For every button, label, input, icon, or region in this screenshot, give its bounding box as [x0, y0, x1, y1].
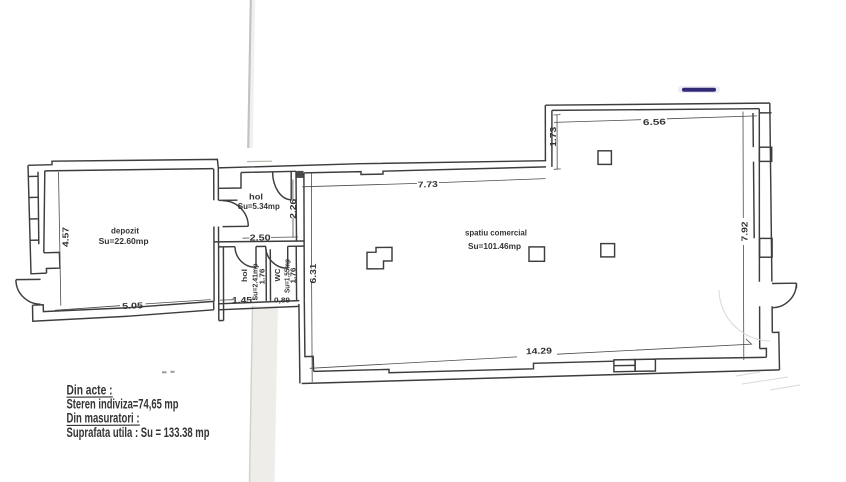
svg-text:Su=101.46mp: Su=101.46mp — [468, 241, 521, 251]
svg-text:2.50: 2.50 — [250, 233, 271, 243]
svg-text:7.92: 7.92 — [739, 221, 749, 241]
svg-text:6.31: 6.31 — [308, 263, 318, 283]
svg-text:1.76: 1.76 — [288, 268, 297, 284]
svg-text:Su=5.34mp: Su=5.34mp — [238, 201, 280, 211]
svg-text:Din acte :: Din acte : — [67, 383, 113, 398]
svg-text:hol: hol — [240, 269, 249, 282]
svg-text:14.29: 14.29 — [526, 345, 553, 356]
svg-text:5.05: 5.05 — [122, 300, 144, 311]
svg-text:Steren indiviza=74,65 mp: Steren indiviza=74,65 mp — [67, 397, 179, 412]
svg-text:1.76: 1.76 — [258, 269, 267, 285]
svg-text:Din masuratori :: Din masuratori : — [67, 411, 140, 426]
svg-text:WC: WC — [273, 268, 282, 282]
svg-text:Su=22.60mp: Su=22.60mp — [99, 236, 149, 246]
svg-text:0,89: 0,89 — [274, 295, 290, 304]
svg-text:spatiu comercial: spatiu comercial — [465, 228, 527, 238]
svg-text:4.57: 4.57 — [60, 227, 70, 247]
svg-text:6.56: 6.56 — [643, 116, 667, 127]
svg-text:depozit: depozit — [111, 225, 139, 235]
svg-text:1.73: 1.73 — [548, 126, 558, 146]
svg-text:Suprafata utila : Su = 133.38: Suprafata utila : Su = 133.38 mp — [67, 425, 210, 440]
svg-text:7.73: 7.73 — [418, 179, 439, 190]
svg-text:2.26: 2.26 — [288, 198, 298, 218]
